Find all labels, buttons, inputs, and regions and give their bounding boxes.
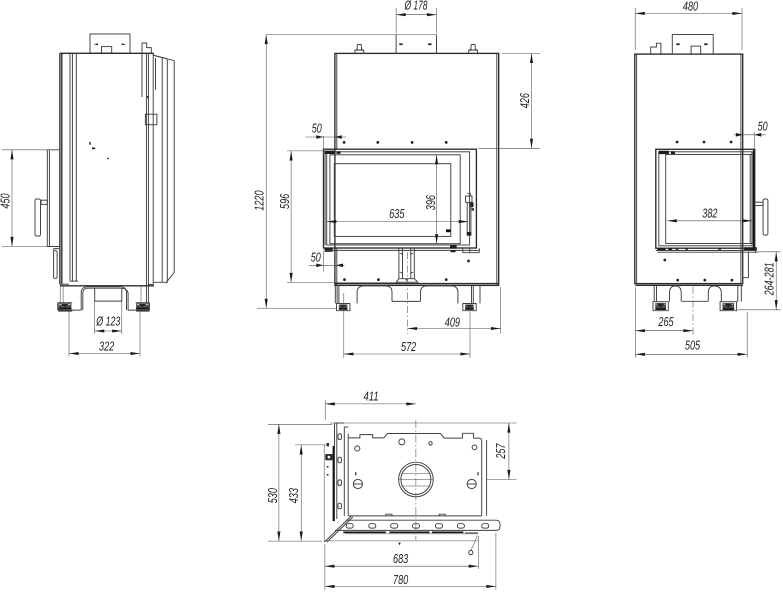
svg-text:480: 480 <box>683 0 699 14</box>
svg-text:780: 780 <box>393 572 409 587</box>
svg-text:596: 596 <box>277 193 292 209</box>
svg-text:382: 382 <box>702 205 717 220</box>
svg-text:50: 50 <box>312 121 323 136</box>
svg-text:635: 635 <box>389 206 405 221</box>
svg-text:50: 50 <box>311 249 322 264</box>
svg-text:264-281: 264-281 <box>762 262 777 296</box>
svg-text:572: 572 <box>401 339 416 354</box>
svg-text:50: 50 <box>758 119 769 134</box>
svg-text:505: 505 <box>685 338 701 353</box>
svg-text:433: 433 <box>286 488 301 504</box>
svg-text:411: 411 <box>364 389 379 404</box>
svg-text:530: 530 <box>265 488 280 504</box>
svg-text:257: 257 <box>493 443 508 459</box>
svg-text:265: 265 <box>658 314 674 329</box>
svg-text:396: 396 <box>423 194 438 210</box>
svg-text:Ø 123: Ø 123 <box>96 314 121 329</box>
svg-text:683: 683 <box>393 551 409 566</box>
svg-text:450: 450 <box>0 193 12 209</box>
svg-text:426: 426 <box>517 93 532 109</box>
svg-text:322: 322 <box>99 338 114 353</box>
svg-text:1220: 1220 <box>252 190 267 211</box>
svg-text:409: 409 <box>445 314 460 329</box>
svg-text:Ø 178: Ø 178 <box>404 0 428 12</box>
